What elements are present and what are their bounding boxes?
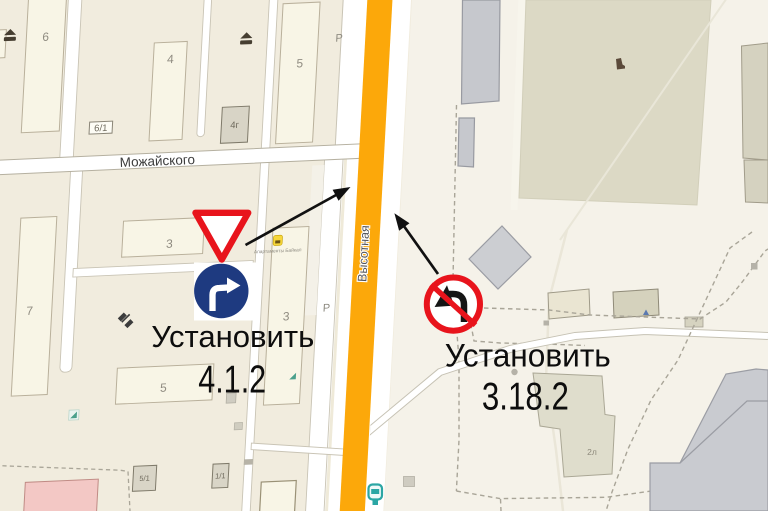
svg-text:Р: Р — [335, 32, 343, 44]
svg-text:Можайского: Можайского — [119, 152, 195, 170]
svg-text:Установить: Установить — [445, 338, 611, 374]
svg-text:4: 4 — [167, 52, 175, 66]
svg-text:5: 5 — [296, 56, 304, 70]
svg-text:5: 5 — [160, 381, 168, 395]
svg-text:4г: 4г — [230, 120, 240, 131]
svg-text:5/1: 5/1 — [139, 474, 150, 483]
svg-text:3: 3 — [166, 237, 174, 251]
svg-text:2л: 2л — [587, 447, 597, 457]
svg-text:7: 7 — [26, 304, 34, 318]
svg-text:Р: Р — [323, 302, 331, 314]
svg-text:Высотная: Высотная — [355, 225, 372, 282]
svg-text:Установить: Установить — [151, 320, 314, 354]
svg-text:4.1.2: 4.1.2 — [198, 358, 266, 401]
svg-text:1/1: 1/1 — [215, 471, 226, 480]
svg-text:6/1: 6/1 — [94, 123, 108, 135]
svg-text:3.18.2: 3.18.2 — [482, 375, 569, 418]
svg-text:6: 6 — [42, 30, 50, 44]
